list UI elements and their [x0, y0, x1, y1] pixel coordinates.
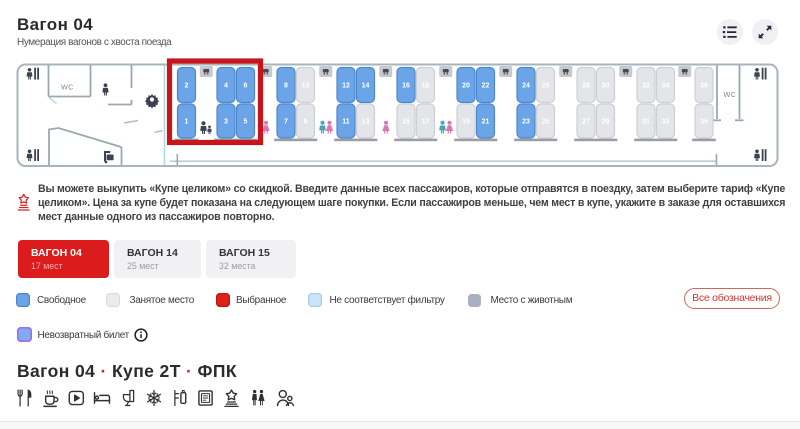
- svg-text:22: 22: [482, 83, 490, 90]
- svg-text:28: 28: [582, 83, 590, 90]
- svg-text:6: 6: [244, 83, 248, 90]
- svg-text:12: 12: [342, 83, 350, 90]
- svg-text:5: 5: [244, 119, 248, 126]
- svg-text:24: 24: [522, 83, 530, 90]
- svg-text:26: 26: [542, 83, 550, 90]
- svg-text:3: 3: [224, 119, 228, 126]
- svg-text:10: 10: [302, 83, 310, 90]
- svg-text:23: 23: [522, 119, 530, 126]
- svg-text:17: 17: [422, 119, 430, 126]
- svg-text:13: 13: [362, 119, 370, 126]
- svg-text:36: 36: [700, 83, 708, 90]
- svg-text:25: 25: [542, 119, 550, 126]
- svg-text:1: 1: [185, 119, 189, 126]
- svg-text:18: 18: [422, 83, 430, 90]
- svg-text:31: 31: [642, 119, 650, 126]
- svg-text:15: 15: [402, 119, 410, 126]
- svg-text:35: 35: [700, 119, 708, 126]
- svg-text:29: 29: [602, 119, 610, 126]
- svg-text:30: 30: [602, 83, 610, 90]
- svg-text:WC: WC: [724, 90, 737, 99]
- svg-text:9: 9: [304, 119, 308, 126]
- svg-text:34: 34: [662, 83, 670, 90]
- svg-text:8: 8: [284, 83, 288, 90]
- svg-text:16: 16: [402, 83, 410, 90]
- svg-text:33: 33: [662, 119, 670, 126]
- svg-text:27: 27: [582, 119, 590, 126]
- svg-text:19: 19: [462, 119, 470, 126]
- svg-text:32: 32: [642, 83, 650, 90]
- svg-text:21: 21: [482, 119, 490, 126]
- svg-text:14: 14: [362, 83, 370, 90]
- svg-text:4: 4: [224, 83, 228, 90]
- svg-text:WC: WC: [61, 83, 74, 92]
- svg-text:7: 7: [284, 119, 288, 126]
- svg-text:11: 11: [342, 119, 350, 126]
- svg-text:2: 2: [185, 83, 189, 90]
- svg-text:20: 20: [462, 83, 470, 90]
